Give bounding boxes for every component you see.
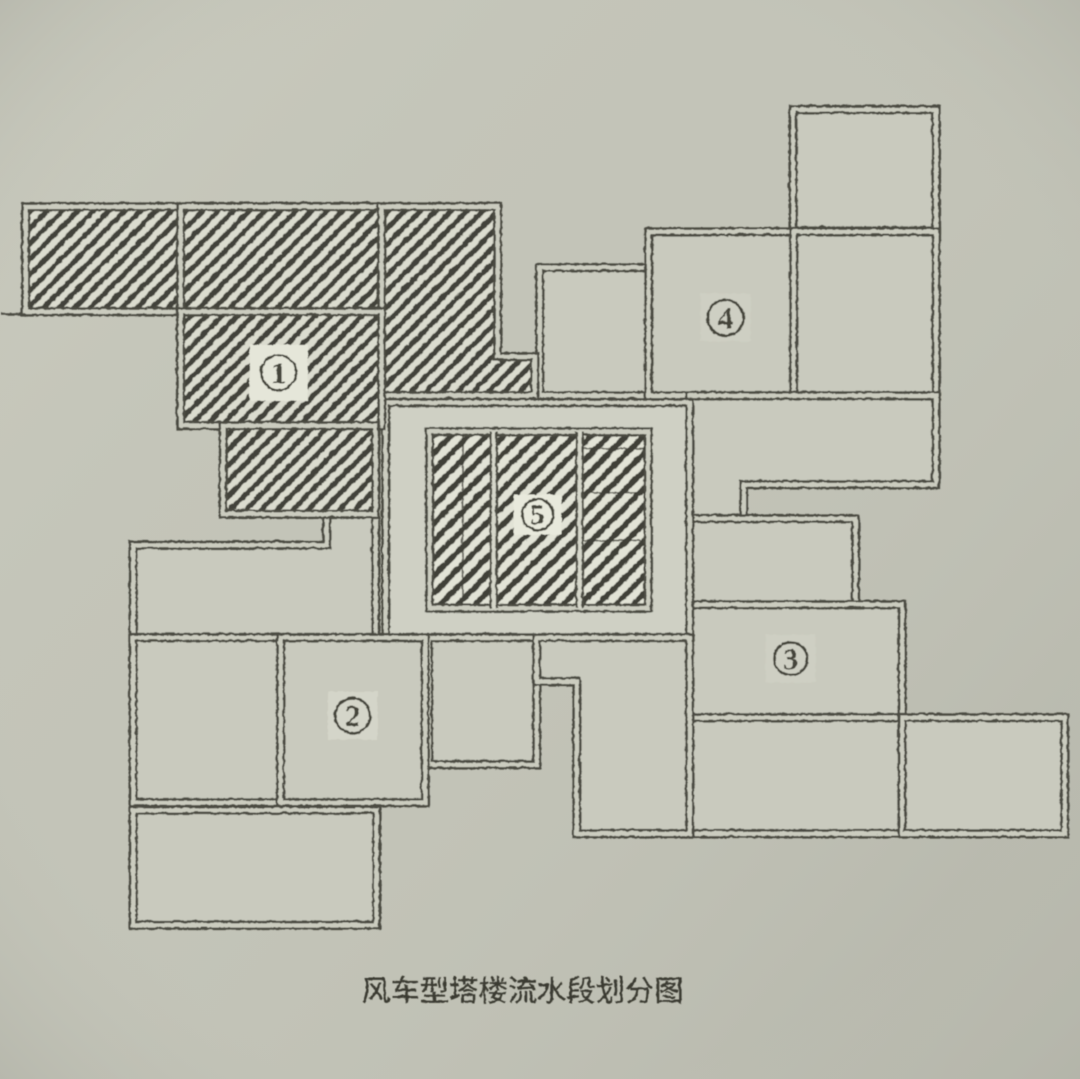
svg-text:4: 4 bbox=[717, 299, 733, 335]
svg-text:5: 5 bbox=[530, 500, 544, 531]
svg-text:1: 1 bbox=[270, 355, 286, 390]
svg-text:3: 3 bbox=[783, 642, 798, 675]
svg-text:2: 2 bbox=[344, 698, 360, 733]
